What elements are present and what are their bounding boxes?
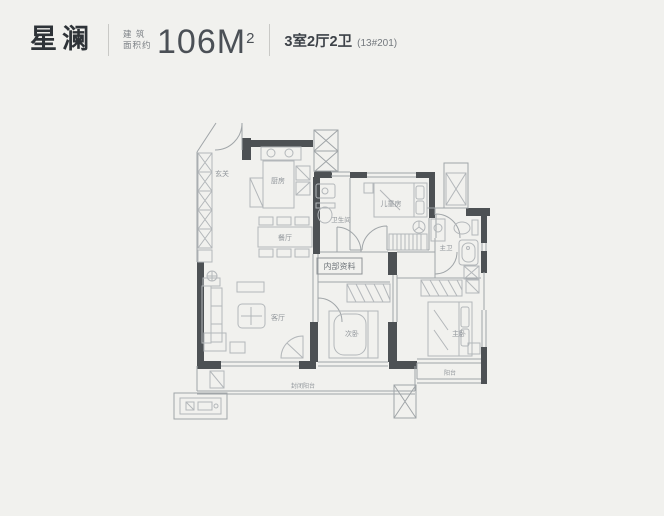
floor-plan: 内部资料 玄关 厨房 餐厅 卫生间 儿童房 主卫 客厅 次卧 主卧 阳台 封闭阳… [0,0,664,516]
kids-room-furniture [364,173,466,250]
room-label-kids-room: 儿童房 [381,199,402,208]
room-label-dining: 餐厅 [278,233,292,242]
room-label-master-bed: 主卧 [452,329,466,338]
room-label-kitchen: 厨房 [271,176,285,185]
room-label-second-bed: 次卧 [345,329,359,338]
second-bedroom-furniture [329,284,390,358]
watermark-text: 内部资料 [324,261,356,271]
watermark-box: 内部资料 [317,258,362,274]
room-label-bath: 卫生间 [331,215,351,224]
partitions-and-windows [174,123,486,419]
ac-platform [180,398,221,414]
room-label-enclosed-balcony: 封闭阳台 [291,382,315,390]
room-label-master-bath: 主卫 [440,243,454,252]
room-label-entry: 玄关 [215,169,229,178]
room-label-living: 客厅 [271,313,285,322]
living-furniture [202,271,303,388]
room-label-balcony: 阳台 [444,369,456,377]
master-bedroom-furniture [421,280,480,356]
entry-cabinet [198,153,212,262]
